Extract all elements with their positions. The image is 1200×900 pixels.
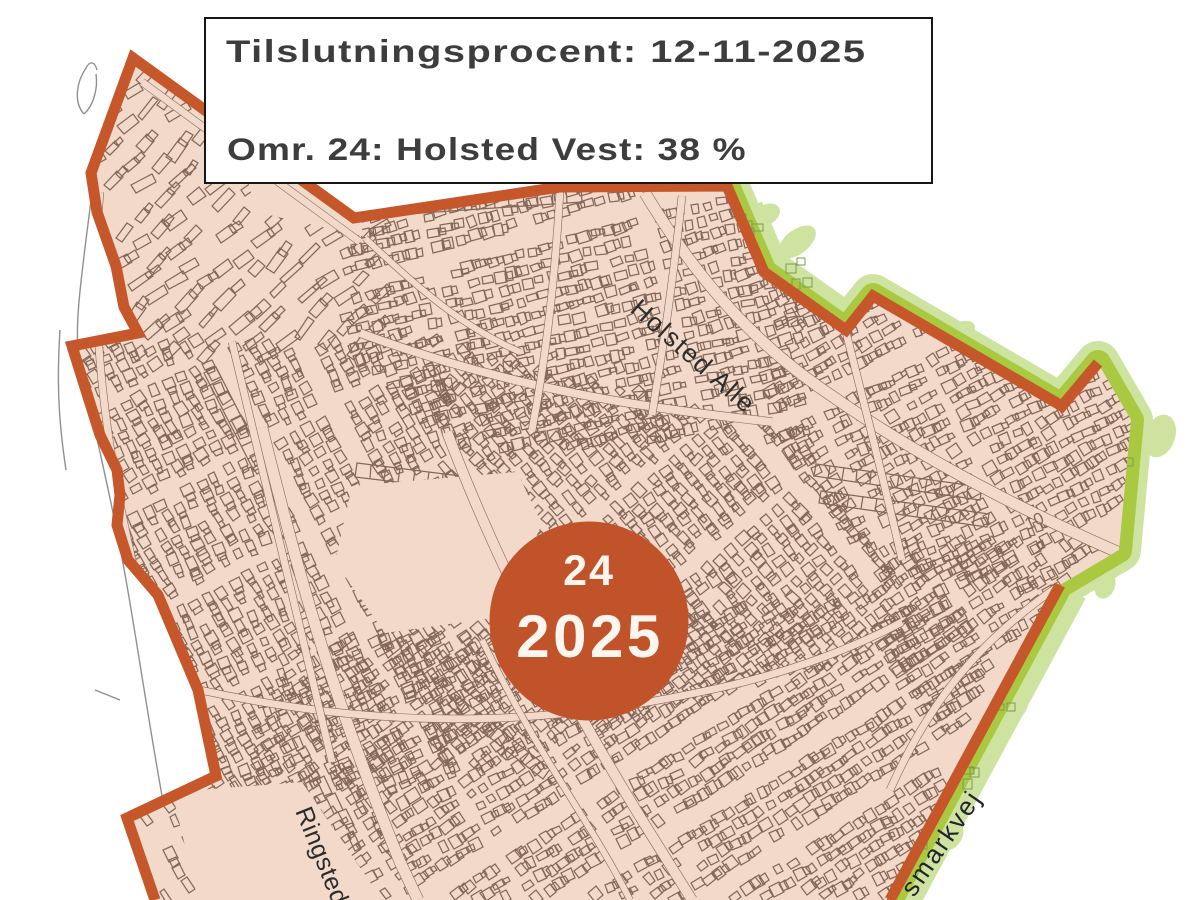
svg-text:24: 24	[563, 547, 615, 595]
svg-text:2025: 2025	[516, 603, 663, 670]
